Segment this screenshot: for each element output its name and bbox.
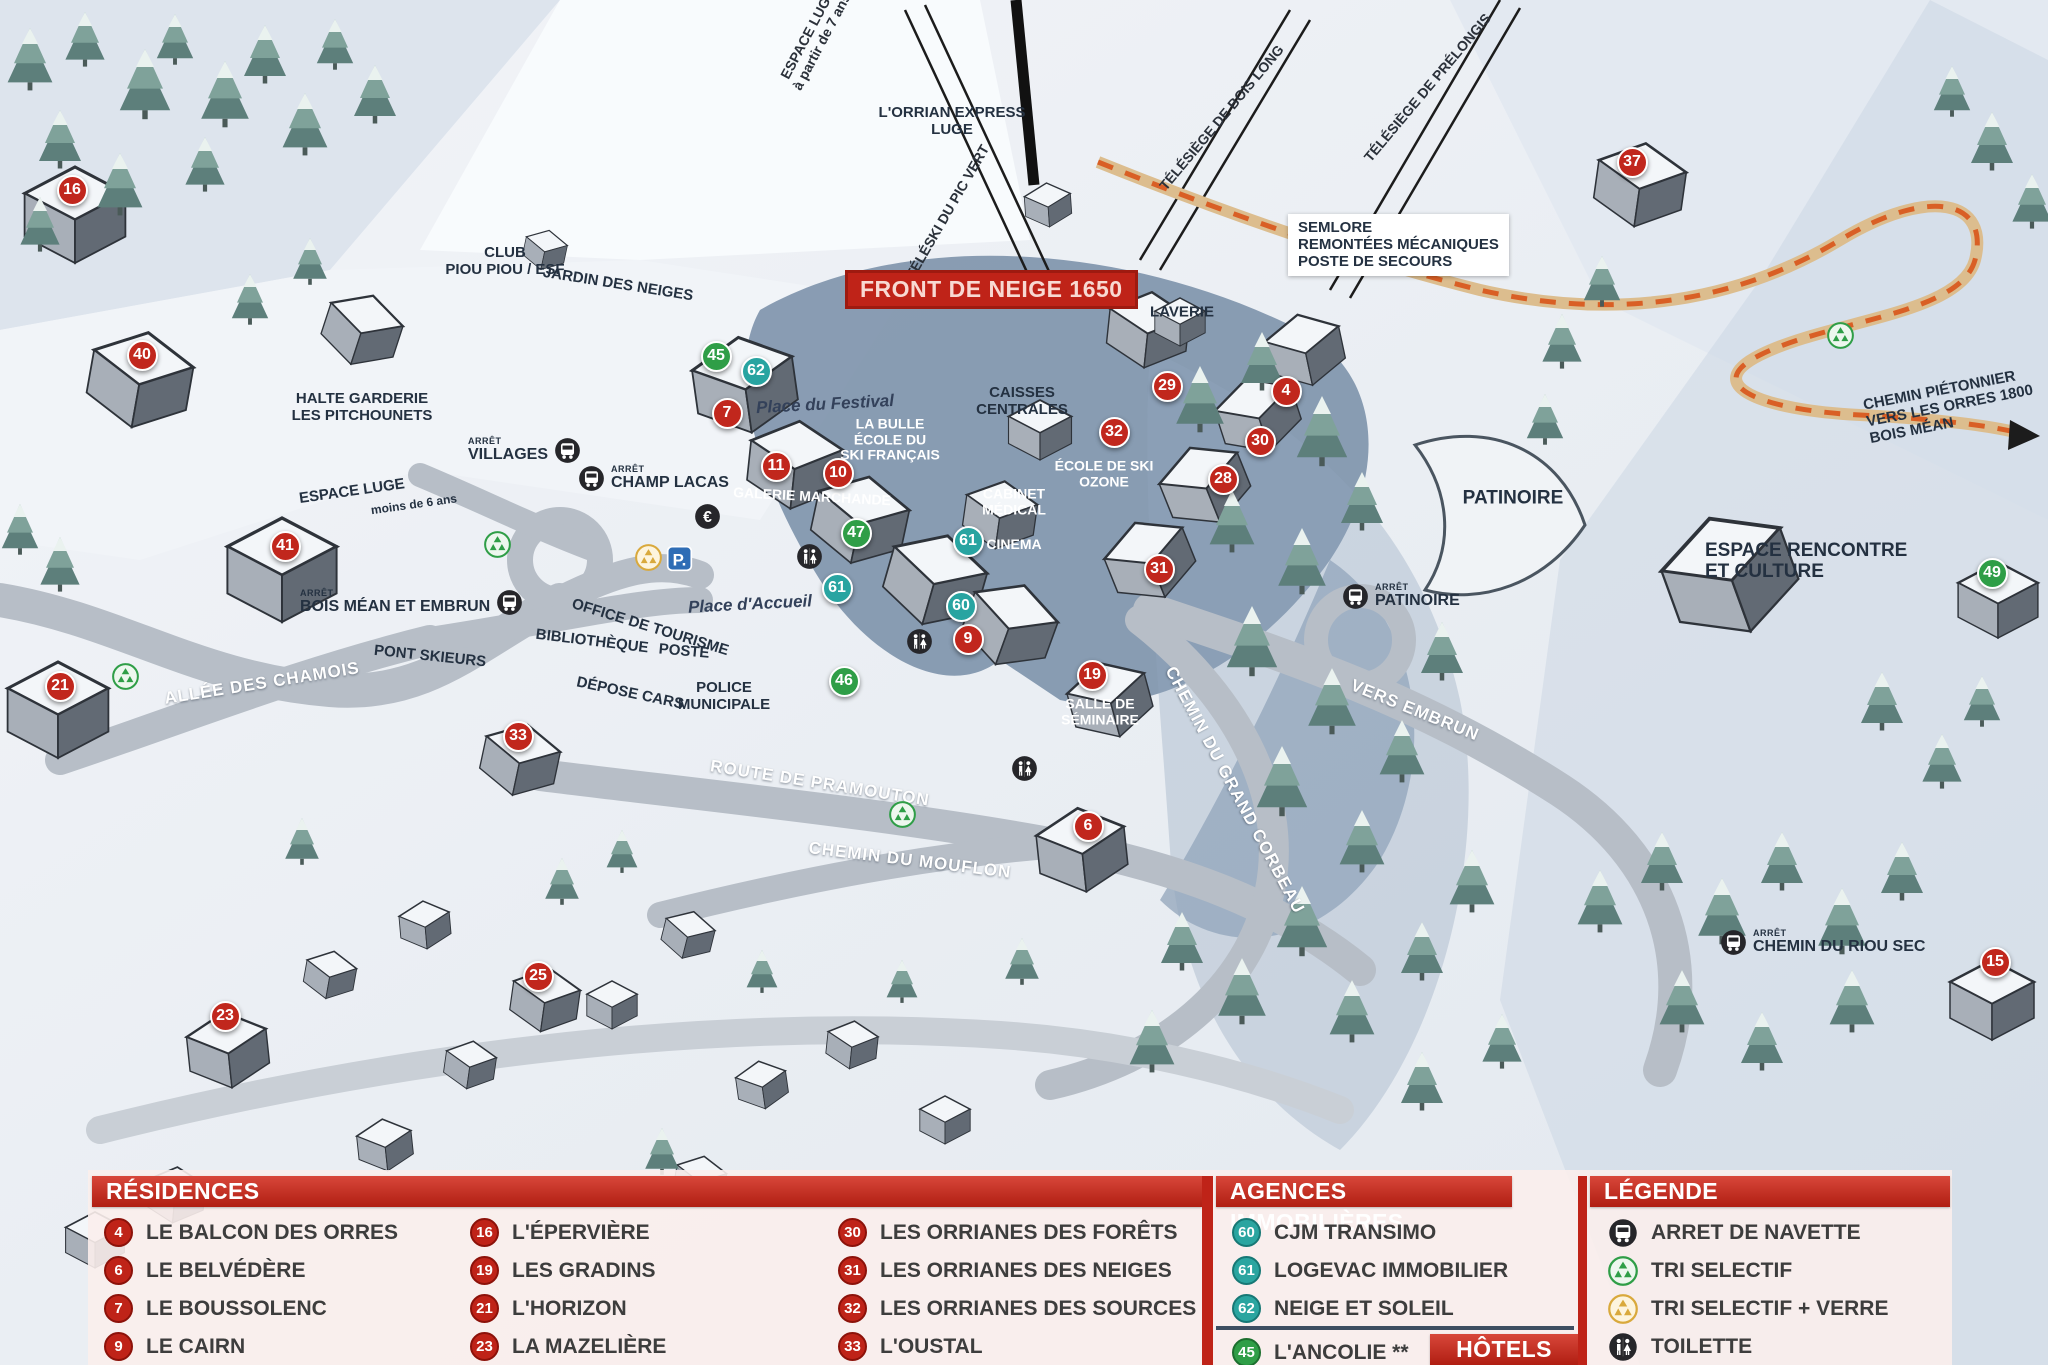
marker-chip-30: 30 (838, 1218, 867, 1247)
item-label: LE BALCON DES ORRES (146, 1221, 398, 1245)
bus-stop-prefix: ARRÊT (611, 464, 729, 474)
bus-stop: ARRÊTVILLAGES (468, 436, 581, 464)
bus-stop-label: ARRÊTCHEMIN DU RIOU SEC (1753, 928, 1925, 956)
toilet-icon (1011, 755, 1038, 782)
item-label: LES ORRIANES DES NEIGES (880, 1259, 1172, 1283)
marker-chip-32: 32 (838, 1294, 867, 1323)
map-label-line: POLICE (678, 680, 770, 697)
map-marker-9: 9 (953, 624, 984, 655)
map-label: SALLE DESÉMINAIRE (1061, 696, 1139, 727)
bus-icon (1608, 1218, 1638, 1248)
svg-text:P.: P. (673, 550, 687, 569)
map-marker-29: 29 (1152, 371, 1183, 402)
residence-item: 32LES ORRIANES DES SOURCES (838, 1294, 1196, 1323)
bus-stop-prefix: ARRÊT (1753, 928, 1925, 938)
map-label: PATINOIRE (1463, 487, 1564, 508)
map-marker-46: 46 (829, 666, 860, 697)
bus-icon (1720, 929, 1747, 956)
residence-item: 23LA MAZELIÈRE (470, 1332, 666, 1361)
item-label: L'OUSTAL (880, 1335, 983, 1359)
map-label-line: ÉCOLE DE SKI (1055, 458, 1154, 474)
item-label: NEIGE ET SOLEIL (1274, 1297, 1454, 1321)
marker-chip-6: 6 (104, 1256, 133, 1285)
map-marker-10: 10 (823, 458, 854, 489)
legende-item: TRI SELECTIF (1608, 1256, 1792, 1286)
toilet-icon (796, 543, 823, 570)
agences-hotels-divider (1216, 1326, 1574, 1330)
item-label: LES GRADINS (512, 1259, 656, 1283)
bus-icon (496, 589, 523, 616)
bus-stop-name: CHEMIN DU RIOU SEC (1753, 938, 1925, 956)
legend-label: TRI SELECTIF (1651, 1259, 1792, 1283)
hotel-item: 45L'ANCOLIE ** (1232, 1338, 1409, 1365)
bus-stop: ARRÊTCHAMP LACAS (578, 464, 729, 492)
map-marker-19: 19 (1077, 660, 1108, 691)
legend-label: TOILETTE (1651, 1335, 1752, 1359)
residence-item: 21L'HORIZON (470, 1294, 627, 1323)
map-label-line: OZONE (1055, 474, 1154, 490)
hotels-header: HÔTELS (1430, 1334, 1578, 1365)
recycle-green-icon (889, 801, 916, 828)
map-label-line: SALLE DE (1061, 696, 1139, 712)
toilet-icon (1608, 1332, 1638, 1362)
residence-item: 31LES ORRIANES DES NEIGES (838, 1256, 1172, 1285)
map-label-line: LA BULLE (840, 416, 940, 432)
bus-icon (578, 465, 605, 492)
map-label-line: MUNICIPALE (678, 697, 770, 714)
map-label: LAVERIE (1150, 305, 1214, 322)
agence-item: 61LOGEVAC IMMOBILIER (1232, 1256, 1508, 1285)
marker-chip-7: 7 (104, 1294, 133, 1323)
map-label: CABINETMÉDICAL (982, 486, 1046, 517)
map-marker-41: 41 (270, 531, 301, 562)
item-label: LOGEVAC IMMOBILIER (1274, 1259, 1508, 1283)
bus-icon (1342, 583, 1369, 610)
bus-stop-name: BOIS MÉAN ET EMBRUN (300, 598, 490, 616)
map-label-line: CAISSES (976, 385, 1068, 402)
map-label-line: LAVERIE (1150, 305, 1214, 322)
map-marker-40: 40 (127, 340, 158, 371)
map-marker-11: 11 (761, 451, 792, 482)
marker-chip-33: 33 (838, 1332, 867, 1361)
marker-chip-61: 61 (1232, 1256, 1261, 1285)
item-label: CJM TRANSIMO (1274, 1221, 1436, 1245)
map-marker-62: 62 (741, 356, 772, 387)
bus-icon (554, 437, 581, 464)
map-marker-45: 45 (701, 341, 732, 372)
map-marker-37: 37 (1617, 147, 1648, 178)
bus-stop-label: ARRÊTPATINOIRE (1375, 582, 1460, 610)
map-label-line: PATINOIRE (1463, 487, 1564, 508)
marker-chip-23: 23 (470, 1332, 499, 1361)
map-label: HALTE GARDERIELES PITCHOUNETS (292, 391, 433, 425)
residence-item: 6LE BELVÉDÈRE (104, 1256, 305, 1285)
map-label-line: CENTRALES (976, 402, 1068, 419)
item-label: LE BELVÉDÈRE (146, 1259, 305, 1283)
legende-item: TRI SELECTIF + VERRE (1608, 1294, 1888, 1324)
map-label-line: HALTE GARDERIE (292, 391, 433, 408)
map-marker-49: 49 (1977, 558, 2008, 589)
front-de-neige-banner: FRONT DE NEIGE 1650 (845, 270, 1138, 309)
marker-chip-21: 21 (470, 1294, 499, 1323)
map-label-line: ÉCOLE DU (840, 432, 940, 448)
map-label-line: LUGE (879, 122, 1026, 139)
parking-icon: P. (666, 545, 693, 572)
legend-label: TRI SELECTIF + VERRE (1651, 1297, 1888, 1321)
map-marker-4: 4 (1271, 376, 1302, 407)
marker-chip-45: 45 (1232, 1338, 1261, 1365)
map-label: L'ORRIAN EXPRESSLUGE (879, 105, 1026, 139)
residence-item: 9LE CAIRN (104, 1332, 245, 1361)
agence-item: 60CJM TRANSIMO (1232, 1218, 1436, 1247)
residence-item: 33L'OUSTAL (838, 1332, 983, 1361)
map-marker-15: 15 (1980, 947, 2011, 978)
marker-chip-60: 60 (1232, 1218, 1261, 1247)
item-label: LA MAZELIÈRE (512, 1335, 666, 1359)
residence-item: 7LE BOUSSOLENC (104, 1294, 327, 1323)
map-marker-47: 47 (841, 518, 872, 549)
map-marker-23: 23 (210, 1001, 241, 1032)
legende-item: TOILETTE (1608, 1332, 1752, 1362)
panel-divider-vertical (1578, 1176, 1587, 1365)
map-label-line: SKI FRANÇAIS (840, 448, 940, 464)
recycle-yellow-icon (1608, 1294, 1638, 1324)
bus-stop-label: ARRÊTBOIS MÉAN ET EMBRUN (300, 588, 490, 616)
map-marker-30: 30 (1245, 426, 1276, 457)
recycle-green-icon (1608, 1256, 1638, 1286)
legend-label: ARRET DE NAVETTE (1651, 1221, 1861, 1245)
panel-divider-vertical (1202, 1176, 1213, 1365)
item-label: LES ORRIANES DES SOURCES (880, 1297, 1196, 1321)
bus-stop: ARRÊTBOIS MÉAN ET EMBRUN (300, 588, 523, 616)
map-marker-16: 16 (57, 175, 88, 206)
map-marker-6: 6 (1073, 811, 1104, 842)
item-label: L'ANCOLIE ** (1274, 1341, 1409, 1365)
marker-chip-19: 19 (470, 1256, 499, 1285)
map-label-line: L'ORRIAN EXPRESS (879, 105, 1026, 122)
map-label-line: REMONTÉES MÉCANIQUES (1298, 237, 1499, 254)
map-marker-60: 60 (946, 591, 977, 622)
marker-chip-62: 62 (1232, 1294, 1261, 1323)
recycle-green-icon (1827, 322, 1854, 349)
map-marker-32: 32 (1099, 417, 1130, 448)
bus-stop: ARRÊTPATINOIRE (1342, 582, 1460, 610)
map-marker-31: 31 (1144, 554, 1175, 585)
map-label-line: CINEMA (986, 537, 1041, 553)
map-label: LA BULLEÉCOLE DUSKI FRANÇAIS (840, 416, 940, 463)
bus-stop-name: CHAMP LACAS (611, 474, 729, 492)
residence-item: 4LE BALCON DES ORRES (104, 1218, 398, 1247)
map-marker-21: 21 (45, 671, 76, 702)
map-marker-28: 28 (1208, 464, 1239, 495)
map-label-line: CLUB (445, 245, 564, 262)
item-label: LE BOUSSOLENC (146, 1297, 327, 1321)
marker-chip-4: 4 (104, 1218, 133, 1247)
map-label: POLICEMUNICIPALE (678, 680, 770, 714)
recycle-yellow-icon (635, 544, 662, 571)
bus-stop-label: ARRÊTCHAMP LACAS (611, 464, 729, 492)
item-label: L'ÉPERVIÈRE (512, 1221, 650, 1245)
map-marker-61: 61 (953, 526, 984, 557)
item-label: LE CAIRN (146, 1335, 245, 1359)
bus-stop-prefix: ARRÊT (1375, 582, 1460, 592)
resort-map: ESPACE LUGEà partir de 7 ansTÉLÉSKI DU P… (0, 0, 2048, 1365)
legende-item: ARRET DE NAVETTE (1608, 1218, 1861, 1248)
map-marker-61: 61 (822, 573, 853, 604)
marker-chip-31: 31 (838, 1256, 867, 1285)
legende-header: LÉGENDE (1590, 1176, 1950, 1207)
map-label-line: CABINET (982, 486, 1046, 502)
map-label-line: ET CULTURE (1705, 561, 1907, 582)
marker-chip-16: 16 (470, 1218, 499, 1247)
svg-text:€: € (703, 509, 712, 526)
residence-item: 30LES ORRIANES DES FORÊTS (838, 1218, 1178, 1247)
map-label: CAISSESCENTRALES (976, 385, 1068, 419)
map-label: ÉCOLE DE SKIOZONE (1055, 458, 1154, 489)
toilet-icon (906, 628, 933, 655)
bus-stop-name: VILLAGES (468, 446, 548, 464)
recycle-green-icon (112, 663, 139, 690)
map-label-line: ESPACE RENCONTRE (1705, 540, 1907, 561)
item-label: L'HORIZON (512, 1297, 627, 1321)
agence-item: 62NEIGE ET SOLEIL (1232, 1294, 1454, 1323)
bus-stop-prefix: ARRÊT (300, 588, 490, 598)
map-label: CINEMA (986, 537, 1041, 553)
map-label-line: LES PITCHOUNETS (292, 408, 433, 425)
item-label: LES ORRIANES DES FORÊTS (880, 1221, 1178, 1245)
map-marker-33: 33 (503, 721, 534, 752)
map-label-line: SÉMINAIRE (1061, 712, 1139, 728)
map-marker-25: 25 (523, 961, 554, 992)
marker-chip-9: 9 (104, 1332, 133, 1361)
euro-icon: € (694, 503, 721, 530)
bus-stop-prefix: ARRÊT (468, 436, 548, 446)
residence-item: 16L'ÉPERVIÈRE (470, 1218, 650, 1247)
bus-stop-name: PATINOIRE (1375, 592, 1460, 610)
map-label: ESPACE RENCONTREET CULTURE (1705, 540, 1907, 583)
map-label-line: MÉDICAL (982, 502, 1046, 518)
residences-header: RÉSIDENCES (92, 1176, 1202, 1207)
recycle-green-icon (484, 531, 511, 558)
map-label-line: POSTE DE SECOURS (1298, 254, 1499, 271)
bus-stop-label: ARRÊTVILLAGES (468, 436, 548, 464)
residence-item: 19LES GRADINS (470, 1256, 656, 1285)
map-label: SEMLOREREMONTÉES MÉCANIQUESPOSTE DE SECO… (1288, 214, 1509, 276)
map-marker-7: 7 (712, 398, 743, 429)
map-label-line: SEMLORE (1298, 220, 1499, 237)
bus-stop: ARRÊTCHEMIN DU RIOU SEC (1720, 928, 1925, 956)
agences-header: AGENCES IMMOBILIÈRES (1216, 1176, 1512, 1207)
